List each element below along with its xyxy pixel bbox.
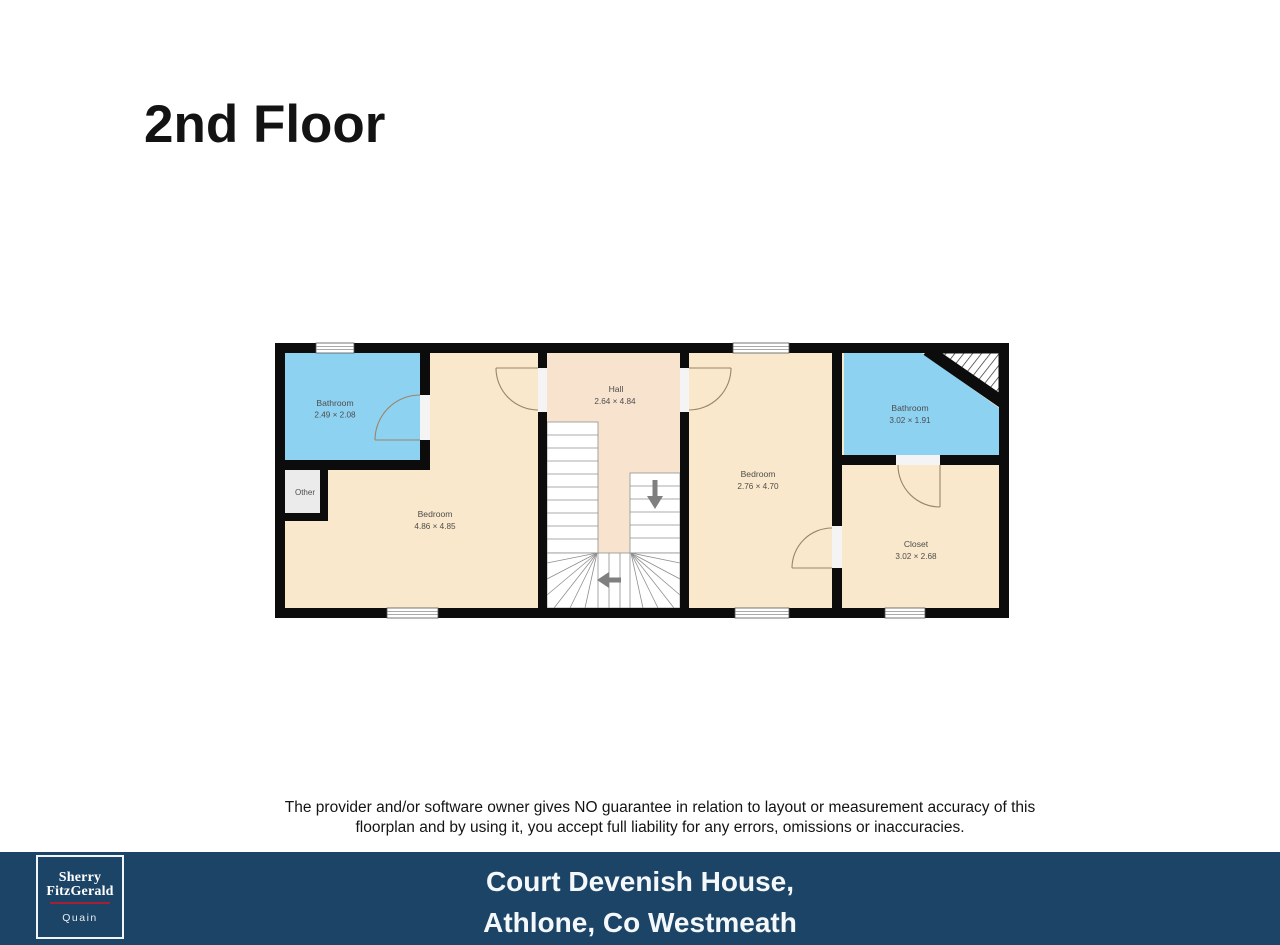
room-label: Bedroom <box>418 509 453 519</box>
window <box>885 608 925 618</box>
wall-outer-right <box>999 343 1009 618</box>
property-address-line1: Court Devenish House, <box>483 861 797 902</box>
room-label: Bathroom <box>891 403 928 413</box>
wall-outer-top <box>275 343 1009 353</box>
wall-bathroom-left-bottom <box>285 460 430 470</box>
disclaimer-line-1: The provider and/or software owner gives… <box>210 798 1110 818</box>
agency-logo-brand-line2: FitzGerald <box>46 885 113 899</box>
agency-logo-rule <box>50 902 110 904</box>
room-label: Closet <box>904 539 929 549</box>
room-label: Bathroom <box>316 398 353 408</box>
window <box>316 343 354 353</box>
room-dims: 2.76 × 4.70 <box>737 482 779 491</box>
window <box>733 343 789 353</box>
room-dims: 2.49 × 2.08 <box>314 411 356 420</box>
window <box>735 608 789 618</box>
window <box>387 608 438 618</box>
agency-logo: Sherry FitzGerald Quain <box>36 855 124 939</box>
stair-flight-left <box>547 422 598 553</box>
property-address-line2: Athlone, Co Westmeath <box>483 902 797 943</box>
property-address: Court Devenish House, Athlone, Co Westme… <box>483 861 797 943</box>
floorplan: Bathroom 2.49 × 2.08 Other Bedroom 4.86 … <box>272 340 1012 620</box>
room-label: Other <box>295 488 315 497</box>
floorplan-drawing: Bathroom 2.49 × 2.08 Other Bedroom 4.86 … <box>272 340 1012 620</box>
room-dims: 3.02 × 2.68 <box>895 552 937 561</box>
wall-other-bottom <box>285 513 328 521</box>
room-dims: 2.64 × 4.84 <box>594 397 636 406</box>
disclaimer-line-2: floorplan and by using it, you accept fu… <box>210 818 1110 838</box>
room-dims: 3.02 × 1.91 <box>889 416 931 425</box>
room-dims: 4.86 × 4.85 <box>414 522 456 531</box>
room-label: Hall <box>609 384 624 394</box>
agency-logo-sub: Quain <box>62 912 98 924</box>
agency-logo-brand-line1: Sherry <box>59 871 101 885</box>
wall-bedroom-closet <box>832 353 842 608</box>
page-title: 2nd Floor <box>144 94 385 155</box>
disclaimer: The provider and/or software owner gives… <box>210 798 1110 837</box>
footer-bar: Sherry FitzGerald Quain Court Devenish H… <box>0 852 1280 945</box>
wall-outer-left <box>275 343 285 618</box>
room-label: Bedroom <box>741 469 776 479</box>
